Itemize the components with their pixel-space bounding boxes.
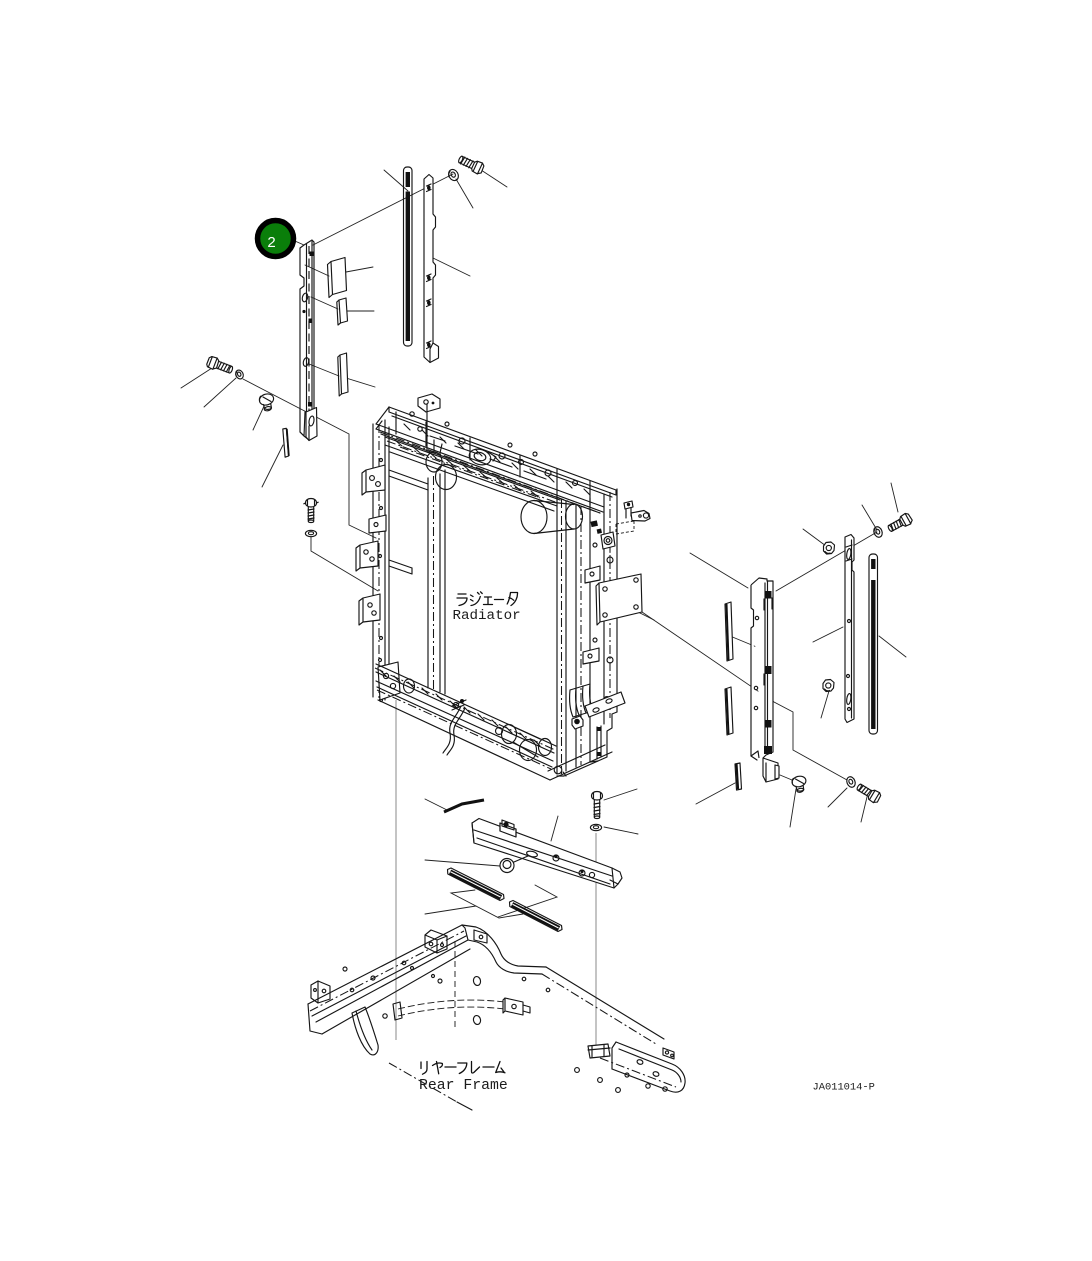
svg-text:Rear Frame: Rear Frame — [419, 1078, 508, 1094]
svg-text:Radiator: Radiator — [453, 608, 521, 624]
svg-text:2: 2 — [267, 234, 275, 251]
svg-text:JA011014-P: JA011014-P — [813, 1082, 875, 1094]
